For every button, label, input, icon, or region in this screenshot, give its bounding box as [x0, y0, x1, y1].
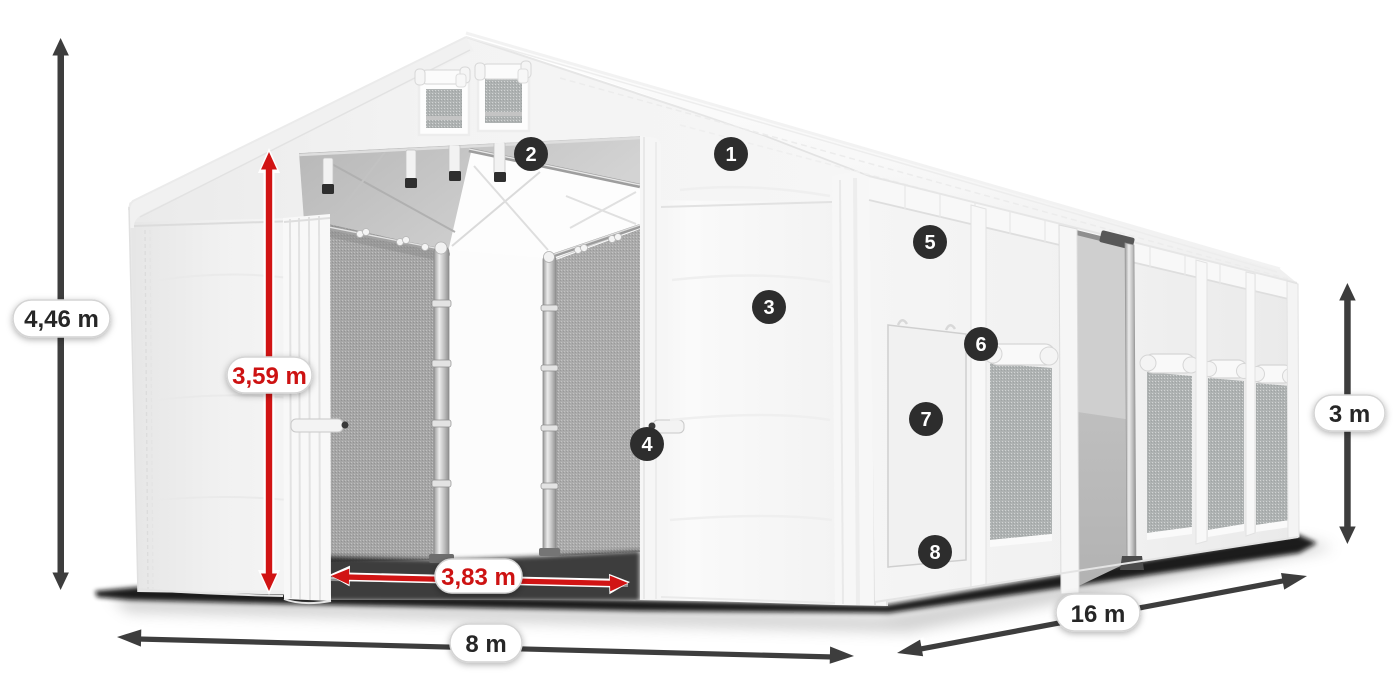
svg-text:8: 8: [929, 542, 940, 564]
svg-text:3,83 m: 3,83 m: [441, 564, 516, 591]
svg-text:4: 4: [641, 434, 653, 456]
svg-text:8 m: 8 m: [465, 631, 506, 658]
svg-text:5: 5: [924, 232, 935, 254]
svg-text:3 m: 3 m: [1329, 401, 1370, 428]
svg-text:3,59 m: 3,59 m: [232, 363, 307, 390]
svg-text:3: 3: [763, 297, 774, 319]
svg-text:7: 7: [920, 409, 931, 431]
svg-text:6: 6: [975, 334, 986, 356]
svg-text:1: 1: [725, 144, 736, 166]
svg-text:2: 2: [525, 144, 536, 166]
svg-text:16 m: 16 m: [1071, 601, 1126, 628]
svg-text:4,46 m: 4,46 m: [24, 306, 99, 333]
